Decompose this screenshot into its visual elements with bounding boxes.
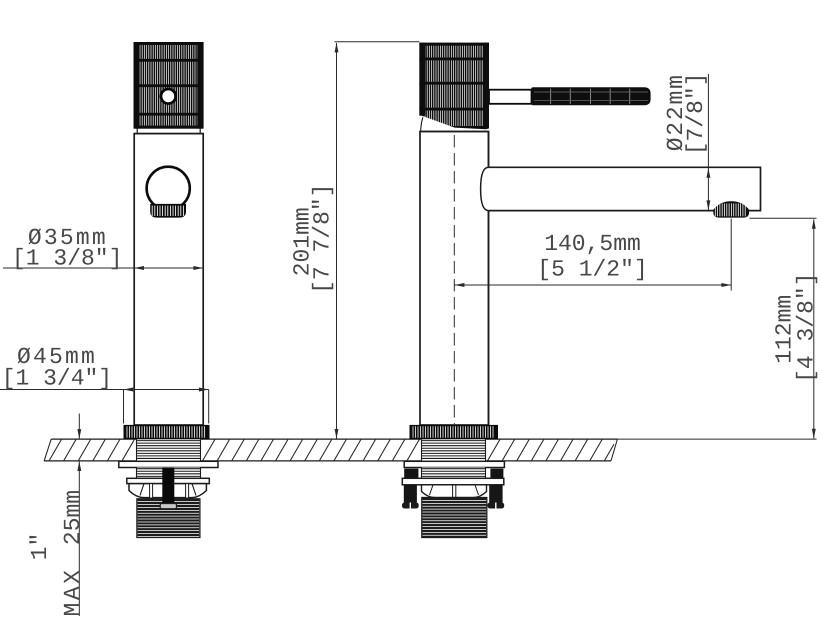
svg-text:25mm: 25mm — [60, 490, 86, 545]
svg-text:1": 1" — [27, 533, 53, 561]
svg-text:[1 3/4"]: [1 3/4"] — [2, 366, 112, 392]
svg-text:[5 1/2"]: [5 1/2"] — [537, 257, 647, 283]
svg-text:[7/8"]: [7/8"] — [683, 72, 709, 155]
svg-text:[1 3/8"]: [1 3/8"] — [12, 246, 122, 272]
svg-text:140,5mm: 140,5mm — [544, 231, 641, 257]
svg-text:MAX: MAX — [60, 568, 86, 617]
svg-text:[7 7/8"]: [7 7/8"] — [310, 183, 336, 293]
svg-text:[4 3/8"]: [4 3/8"] — [793, 272, 819, 382]
